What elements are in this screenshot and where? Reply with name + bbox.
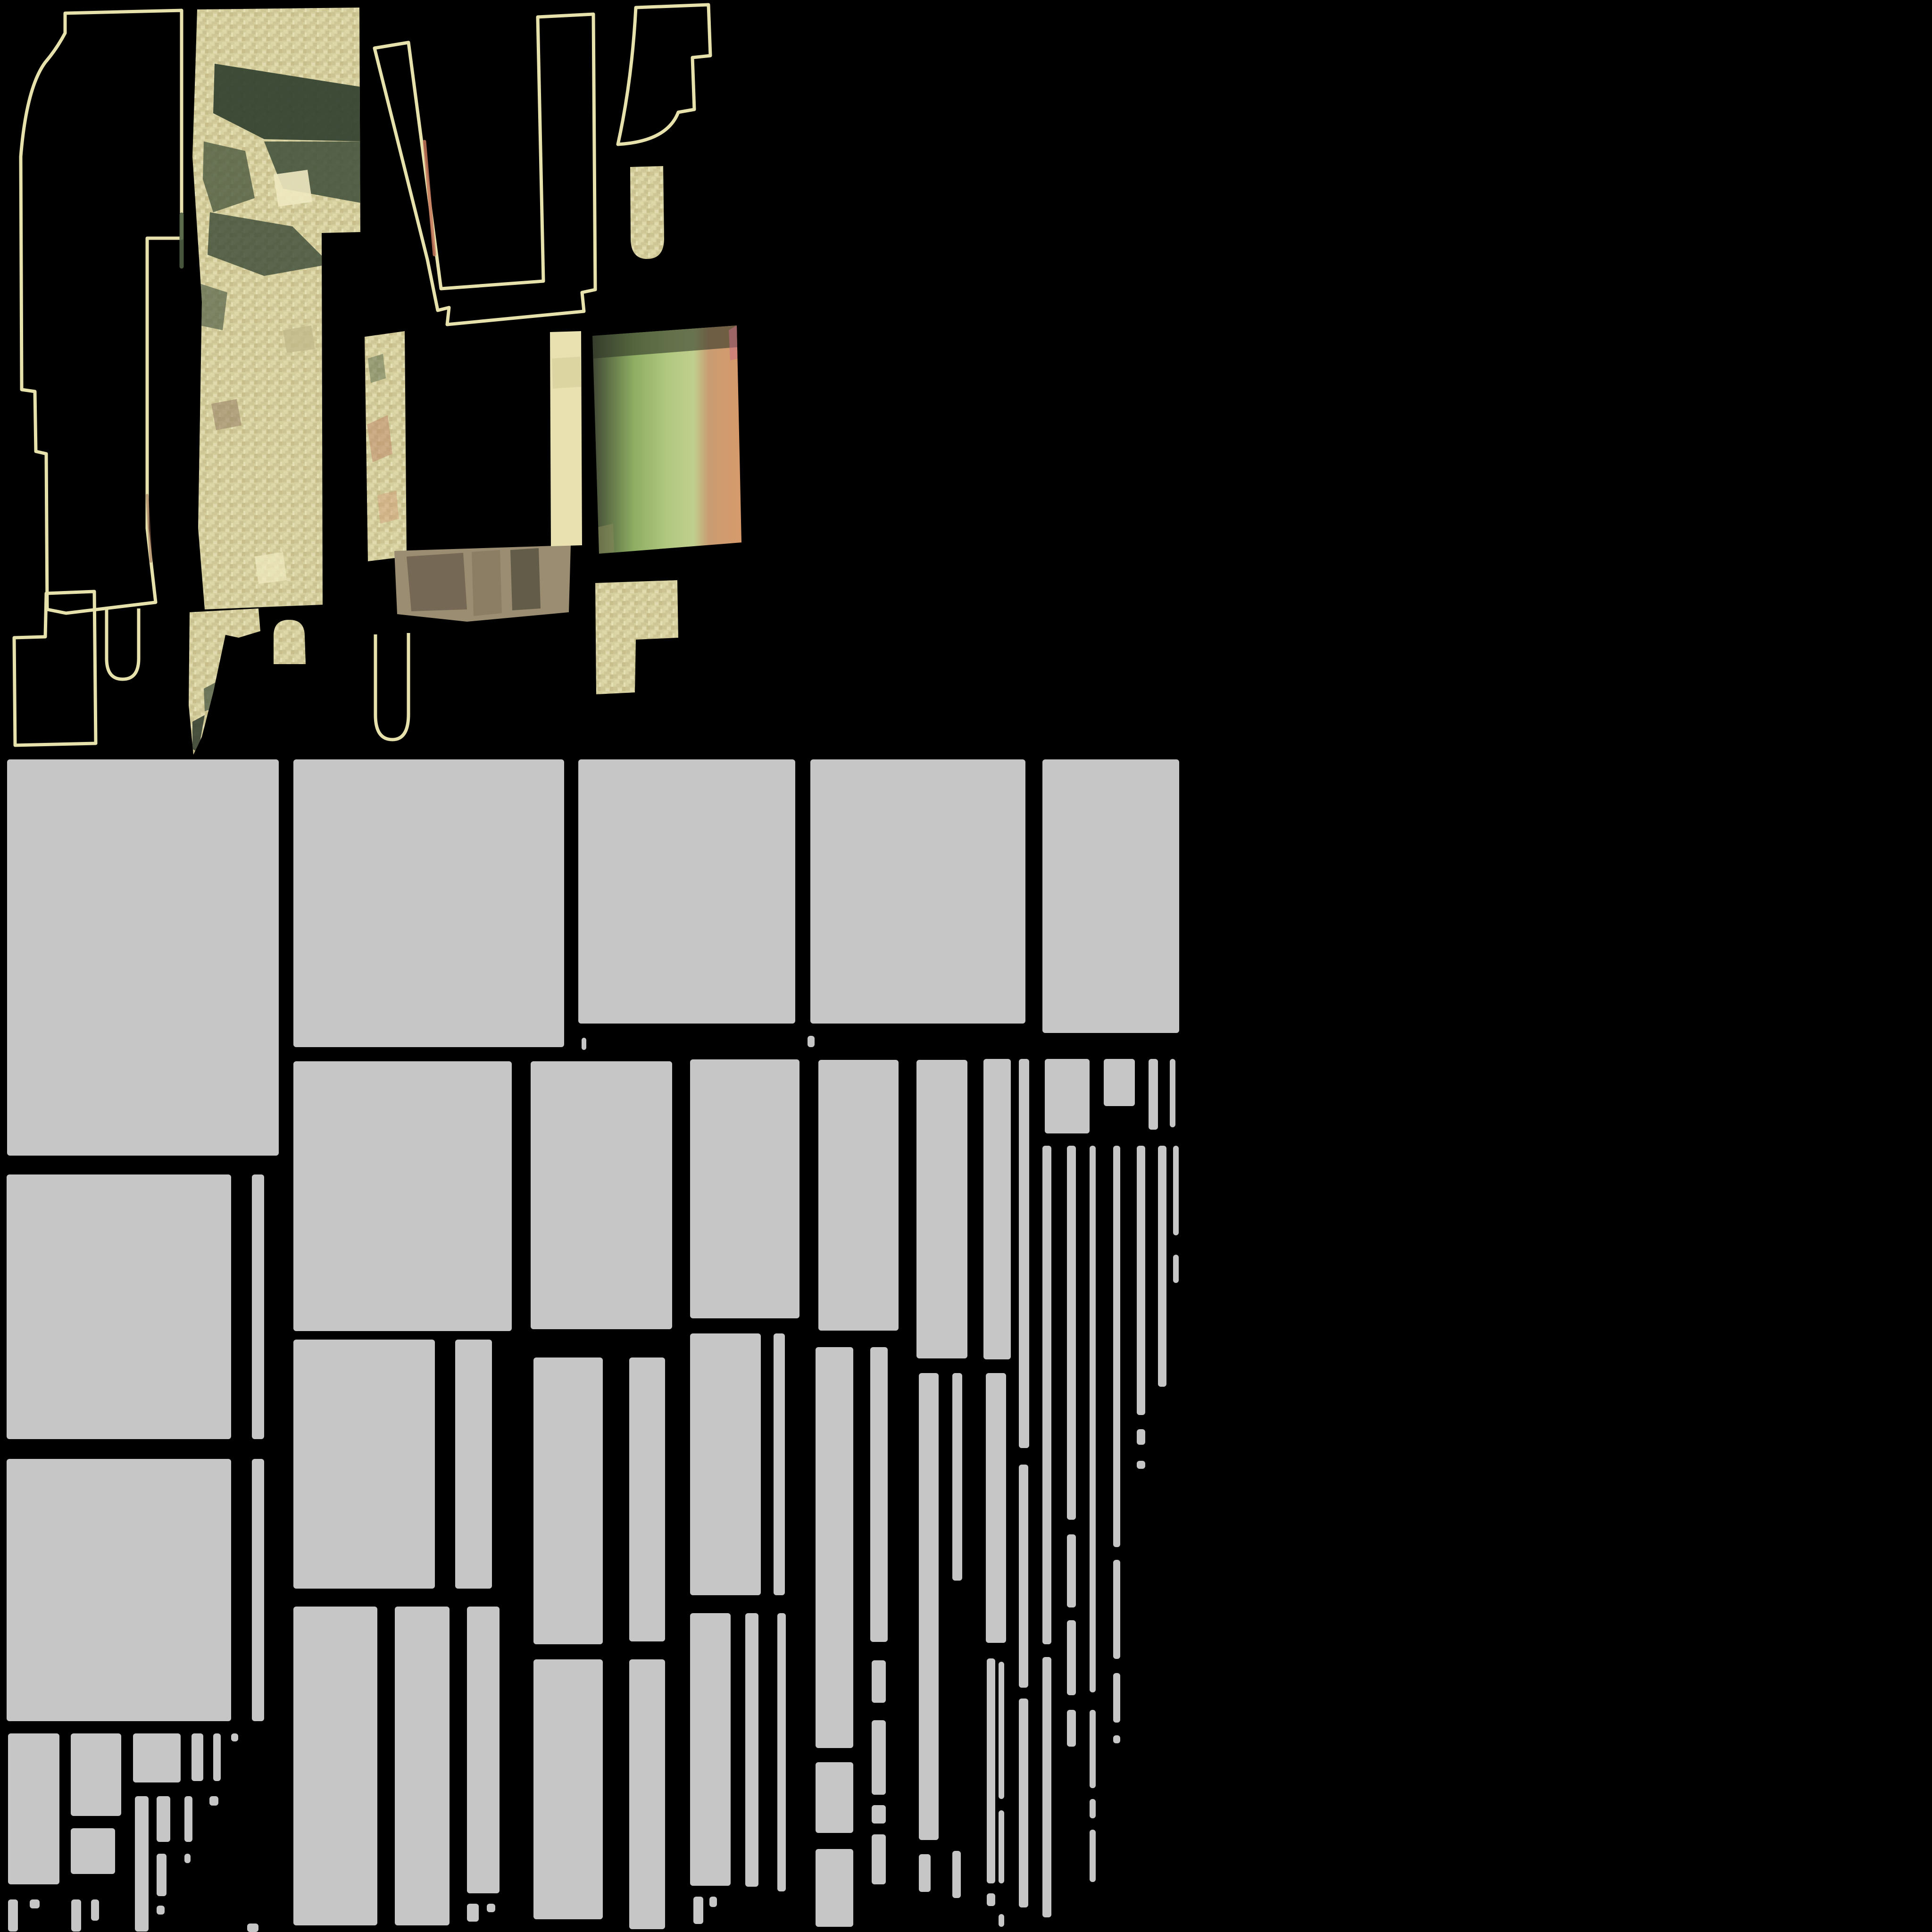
atlas-rect bbox=[818, 1060, 899, 1331]
atlas-rect bbox=[629, 1357, 665, 1641]
atlas-rect bbox=[531, 1061, 672, 1329]
atlas-rect bbox=[999, 1914, 1004, 1927]
atlas-rect bbox=[157, 1796, 170, 1842]
atlas-rect bbox=[1042, 1146, 1051, 1644]
atlas-rect bbox=[1067, 1146, 1076, 1520]
atlas-rect bbox=[1173, 1146, 1179, 1235]
atlas-rect bbox=[578, 759, 795, 1024]
atlas-rect bbox=[1042, 759, 1179, 1033]
atlas-rect bbox=[135, 1796, 149, 1932]
atlas-rect bbox=[1042, 1657, 1051, 1917]
atlas-rect bbox=[293, 1061, 512, 1331]
atlas-rect bbox=[71, 1828, 115, 1874]
atlas-rect bbox=[1019, 1465, 1028, 1688]
atlas-rect bbox=[8, 1899, 18, 1932]
atlas-rect bbox=[231, 1733, 238, 1741]
atlas-rect bbox=[487, 1904, 495, 1912]
atlas-rect bbox=[777, 1613, 786, 1891]
atlas-rect bbox=[71, 1899, 81, 1932]
atlas-rect bbox=[252, 1459, 264, 1721]
atlas-rect bbox=[919, 1373, 939, 1840]
atlas-rect bbox=[7, 1174, 231, 1439]
atlas-rect bbox=[872, 1834, 886, 1884]
atlas-rect bbox=[919, 1854, 931, 1892]
atlas-rect bbox=[467, 1607, 500, 1893]
atlas-rect bbox=[1090, 1830, 1096, 1882]
atlas-rect bbox=[1170, 1059, 1175, 1127]
atlas-rect bbox=[987, 1658, 995, 1883]
atlas-rect bbox=[1019, 1059, 1029, 1448]
atlas-rect bbox=[91, 1899, 99, 1921]
atlas-rect bbox=[986, 1373, 1006, 1643]
atlas-rect bbox=[690, 1613, 731, 1886]
atlas-rect bbox=[745, 1613, 758, 1887]
atlas-rect bbox=[690, 1333, 761, 1595]
atlas-rect bbox=[213, 1733, 221, 1781]
atlas-rect bbox=[30, 1899, 40, 1908]
atlas-rect bbox=[1137, 1146, 1145, 1415]
atlas-rect bbox=[1090, 1799, 1096, 1818]
atlas-rect bbox=[1113, 1673, 1120, 1723]
atlas-rect bbox=[1158, 1146, 1166, 1387]
atlas-rect bbox=[808, 1036, 815, 1047]
atlas-rect bbox=[690, 1059, 799, 1318]
atlas-rect bbox=[1173, 1255, 1179, 1283]
atlas-rect bbox=[395, 1607, 450, 1925]
atlas-rect bbox=[71, 1733, 121, 1816]
atlas-rect bbox=[987, 1893, 995, 1906]
atlas-rect bbox=[1090, 1710, 1096, 1788]
atlas-rect bbox=[1137, 1429, 1145, 1445]
atlas-rect bbox=[1067, 1534, 1076, 1607]
atlas-rect bbox=[252, 1174, 264, 1439]
atlas-rect bbox=[872, 1805, 886, 1824]
placeholder-rects-layer bbox=[0, 0, 1932, 1932]
atlas-rect bbox=[816, 1762, 853, 1833]
atlas-rect bbox=[1113, 1735, 1120, 1743]
atlas-rect bbox=[1067, 1620, 1076, 1695]
atlas-rect bbox=[1090, 1146, 1096, 1692]
atlas-rect bbox=[293, 1607, 377, 1925]
atlas-rect bbox=[709, 1897, 717, 1907]
atlas-rect bbox=[582, 1038, 586, 1050]
atlas-rect bbox=[872, 1660, 886, 1703]
atlas-rect bbox=[533, 1357, 603, 1644]
atlas-rect bbox=[1019, 1699, 1028, 1907]
texture-atlas-canvas bbox=[0, 0, 1932, 1932]
atlas-rect bbox=[293, 1340, 435, 1589]
atlas-rect bbox=[816, 1849, 853, 1927]
atlas-rect bbox=[983, 1059, 1011, 1359]
atlas-rect bbox=[1149, 1059, 1158, 1130]
atlas-rect bbox=[916, 1060, 967, 1358]
atlas-rect bbox=[184, 1796, 192, 1842]
atlas-rect bbox=[999, 1662, 1004, 1799]
atlas-rect bbox=[7, 1459, 231, 1721]
atlas-rect bbox=[293, 759, 564, 1047]
atlas-rect bbox=[133, 1733, 181, 1782]
atlas-rect bbox=[157, 1854, 167, 1896]
atlas-rect bbox=[774, 1333, 785, 1595]
atlas-rect bbox=[455, 1340, 492, 1589]
atlas-rect bbox=[870, 1347, 888, 1642]
atlas-rect bbox=[1104, 1059, 1135, 1106]
atlas-rect bbox=[810, 759, 1025, 1024]
atlas-rect bbox=[1113, 1146, 1120, 1547]
atlas-rect bbox=[952, 1373, 962, 1581]
atlas-rect bbox=[999, 1810, 1004, 1883]
atlas-rect bbox=[192, 1733, 203, 1781]
atlas-rect bbox=[8, 1733, 59, 1884]
atlas-rect bbox=[157, 1906, 165, 1915]
atlas-rect bbox=[467, 1904, 479, 1922]
atlas-rect bbox=[247, 1924, 258, 1932]
atlas-rect bbox=[872, 1720, 886, 1795]
atlas-rect bbox=[952, 1851, 961, 1898]
atlas-rect bbox=[533, 1659, 603, 1919]
atlas-rect bbox=[1067, 1710, 1076, 1747]
atlas-rect bbox=[629, 1659, 665, 1929]
atlas-rect bbox=[1113, 1560, 1120, 1659]
atlas-rect bbox=[1045, 1059, 1090, 1133]
atlas-rect bbox=[184, 1854, 191, 1863]
atlas-rect bbox=[209, 1796, 218, 1806]
atlas-rect bbox=[7, 759, 279, 1156]
atlas-rect bbox=[693, 1897, 703, 1924]
atlas-rect bbox=[816, 1347, 853, 1748]
atlas-rect bbox=[1137, 1461, 1145, 1469]
